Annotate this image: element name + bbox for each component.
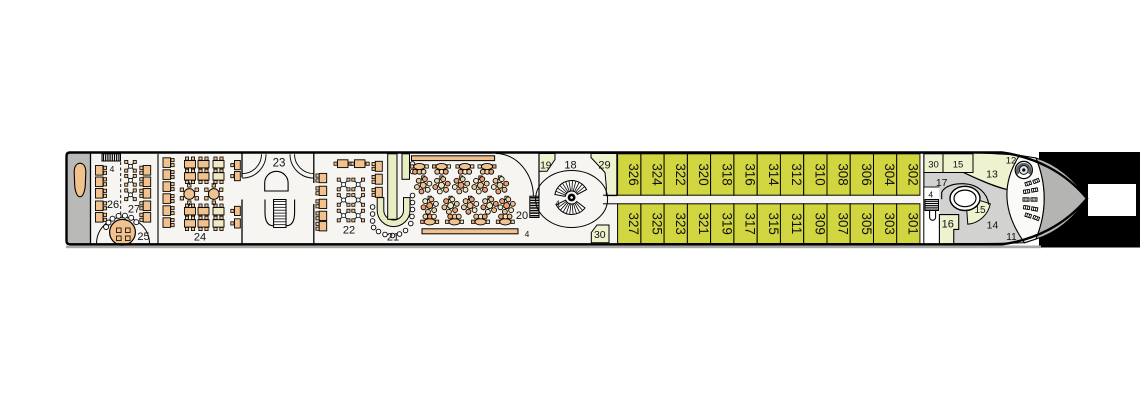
svg-text:23: 23: [273, 158, 286, 170]
svg-text:15: 15: [974, 205, 986, 216]
svg-text:304: 304: [882, 163, 897, 186]
svg-text:303: 303: [882, 213, 897, 235]
svg-text:27: 27: [128, 204, 140, 216]
svg-text:26: 26: [107, 199, 119, 211]
svg-text:30: 30: [594, 229, 606, 241]
svg-text:305: 305: [859, 213, 874, 235]
svg-text:19: 19: [540, 161, 552, 172]
svg-text:14: 14: [987, 220, 999, 232]
svg-text:312: 312: [789, 163, 804, 185]
svg-text:307: 307: [836, 213, 851, 235]
svg-text:21: 21: [387, 232, 399, 244]
svg-text:4: 4: [555, 199, 560, 209]
svg-text:318: 318: [719, 163, 734, 185]
svg-text:29: 29: [598, 160, 610, 172]
svg-text:325: 325: [650, 213, 665, 235]
svg-text:18: 18: [564, 160, 576, 172]
svg-text:302: 302: [905, 163, 920, 185]
svg-text:4: 4: [525, 229, 530, 239]
svg-text:4: 4: [110, 164, 115, 174]
svg-text:17: 17: [936, 177, 948, 189]
svg-text:13: 13: [986, 169, 998, 181]
svg-text:12: 12: [1006, 156, 1017, 167]
svg-text:309: 309: [812, 213, 827, 235]
svg-text:15: 15: [953, 160, 964, 171]
svg-text:30: 30: [928, 160, 939, 171]
svg-text:322: 322: [673, 163, 688, 185]
svg-text:323: 323: [673, 213, 688, 235]
svg-text:320: 320: [696, 163, 711, 185]
svg-text:22: 22: [343, 225, 355, 237]
svg-text:16: 16: [942, 219, 954, 231]
svg-text:25: 25: [137, 231, 149, 243]
svg-text:306: 306: [859, 163, 874, 185]
svg-text:308: 308: [836, 163, 851, 185]
svg-text:24: 24: [194, 232, 206, 244]
svg-text:310: 310: [812, 163, 827, 185]
svg-text:321: 321: [696, 213, 711, 235]
svg-text:315: 315: [766, 213, 781, 235]
svg-text:4: 4: [928, 190, 933, 200]
svg-text:317: 317: [743, 213, 758, 235]
svg-text:324: 324: [650, 163, 665, 186]
svg-text:20: 20: [516, 210, 528, 222]
svg-text:319: 319: [719, 213, 734, 235]
svg-text:301: 301: [905, 213, 920, 235]
svg-text:311: 311: [789, 213, 804, 234]
svg-text:316: 316: [743, 163, 758, 185]
svg-text:326: 326: [626, 163, 641, 185]
svg-text:327: 327: [626, 213, 641, 235]
svg-text:314: 314: [766, 163, 781, 186]
